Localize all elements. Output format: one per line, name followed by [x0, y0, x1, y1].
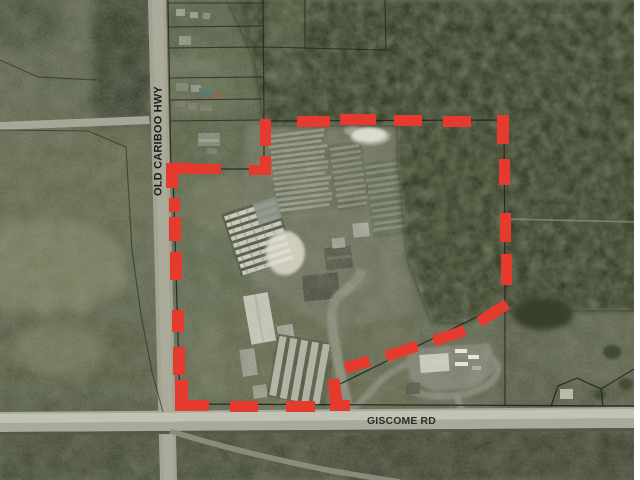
svg-text:OLD CARIBOO HWY: OLD CARIBOO HWY — [153, 86, 165, 196]
svg-text:GISCOME RD: GISCOME RD — [367, 416, 436, 427]
